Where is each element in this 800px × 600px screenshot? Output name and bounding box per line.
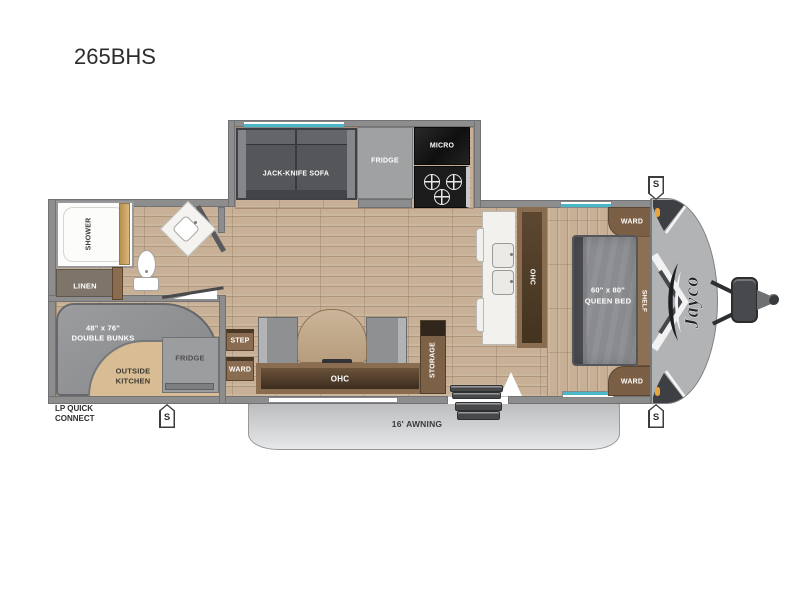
burner-icon [446, 174, 462, 190]
awning-label: 16' AWNING [392, 419, 442, 429]
lp-quick-connect-label: LP QUICK CONNECT [55, 404, 95, 424]
speaker-marker: S [648, 176, 664, 200]
dinette-bench-right [366, 317, 407, 364]
bunkroom-wall-right [219, 295, 226, 404]
lp-label-line2: CONNECT [55, 414, 95, 424]
kitchen-ohc-label: OHC [529, 269, 536, 285]
slideout-window [243, 121, 345, 128]
jack-knife-sofa [236, 128, 357, 200]
outside-fridge-label: FRIDGE [175, 354, 205, 363]
kitchen-counter-bump [476, 228, 484, 262]
entry-step [452, 392, 501, 399]
speaker-marker: S [159, 404, 175, 428]
entry-step [457, 411, 500, 420]
sofa-seam [295, 130, 297, 192]
slideout-fridge-vent [358, 199, 412, 208]
shelf-label: SHELF [641, 290, 648, 312]
bed-name-label: QUEEN BED [585, 297, 631, 306]
clearance-light [655, 387, 660, 396]
kitchen-faucet [510, 280, 513, 283]
sofa-label: JACK-KNIFE SOFA [263, 171, 329, 178]
kitchen-counter-bump [476, 298, 484, 332]
entry-step [455, 402, 502, 411]
dinette-window [268, 397, 398, 403]
sofa-arm-left [238, 130, 246, 198]
storage-top [421, 321, 445, 336]
dinette-ohc-label: OHC [331, 375, 349, 384]
outside-kitchen-fridge [162, 337, 219, 393]
speaker-marker: S [648, 404, 664, 428]
burner-icon [434, 189, 450, 205]
kitchen-faucet [510, 253, 513, 256]
toilet-flush [145, 270, 148, 273]
front-cap-graphics: Jayco [652, 199, 718, 404]
bed-size-label: 60" x 80" [591, 286, 625, 295]
speaker-marker-letter: S [159, 412, 175, 423]
shower-door [119, 203, 130, 265]
burner-icon [424, 174, 440, 190]
hall-ward-label: WARD [229, 367, 251, 374]
toilet-tank [133, 277, 159, 291]
entry-step [450, 385, 503, 392]
bath-wood-partition [112, 267, 123, 300]
bedroom-ward-bottom-label: WARD [621, 379, 643, 386]
dinette-bench-left [258, 317, 298, 364]
sofa-arm-right [347, 130, 355, 198]
shower-pan [63, 207, 125, 262]
bunks-size-label: 48" x 76" [86, 324, 120, 333]
model-title: 265BHS [74, 44, 156, 70]
jayco-logo: Jayco [681, 276, 703, 330]
slideout-wall-right [474, 120, 481, 208]
shower-label: SHOWER [86, 218, 93, 251]
bedroom-window-top [560, 201, 612, 208]
sofa-front [246, 190, 347, 198]
bath-wall-stub [218, 207, 225, 233]
outside-kitchen-label-1: OUTSIDE [116, 367, 151, 376]
clearance-light [655, 208, 660, 217]
bath-sink-faucet [194, 221, 197, 224]
bedroom-ward-top-label: WARD [621, 219, 643, 226]
cooktop [414, 166, 470, 208]
hitch-ball [768, 294, 779, 305]
bunks-name-label: DOUBLE BUNKS [72, 334, 135, 343]
speaker-marker-letter: S [648, 412, 664, 423]
storage-label: STORAGE [430, 342, 437, 378]
propane-tank [731, 277, 758, 323]
outside-kitchen-label-2: KITCHEN [116, 377, 151, 386]
front-cap: Jayco [650, 198, 718, 404]
lp-label-line1: LP QUICK [55, 404, 95, 414]
step-label: STEP [230, 338, 249, 345]
slideout-fridge-label: FRIDGE [371, 158, 399, 165]
linen-label: LINEN [73, 282, 97, 291]
outside-fridge-vent [165, 383, 214, 390]
slideout-wall-left [228, 120, 235, 207]
floorplan-page: 265BHS 16' AWNING JACK-KNIFE SOFA FRIDGE… [0, 0, 800, 600]
bedroom-window-bottom [562, 391, 614, 398]
micro-label: MICRO [430, 143, 454, 150]
toilet-bowl [137, 250, 156, 279]
speaker-marker-letter: S [648, 179, 664, 190]
